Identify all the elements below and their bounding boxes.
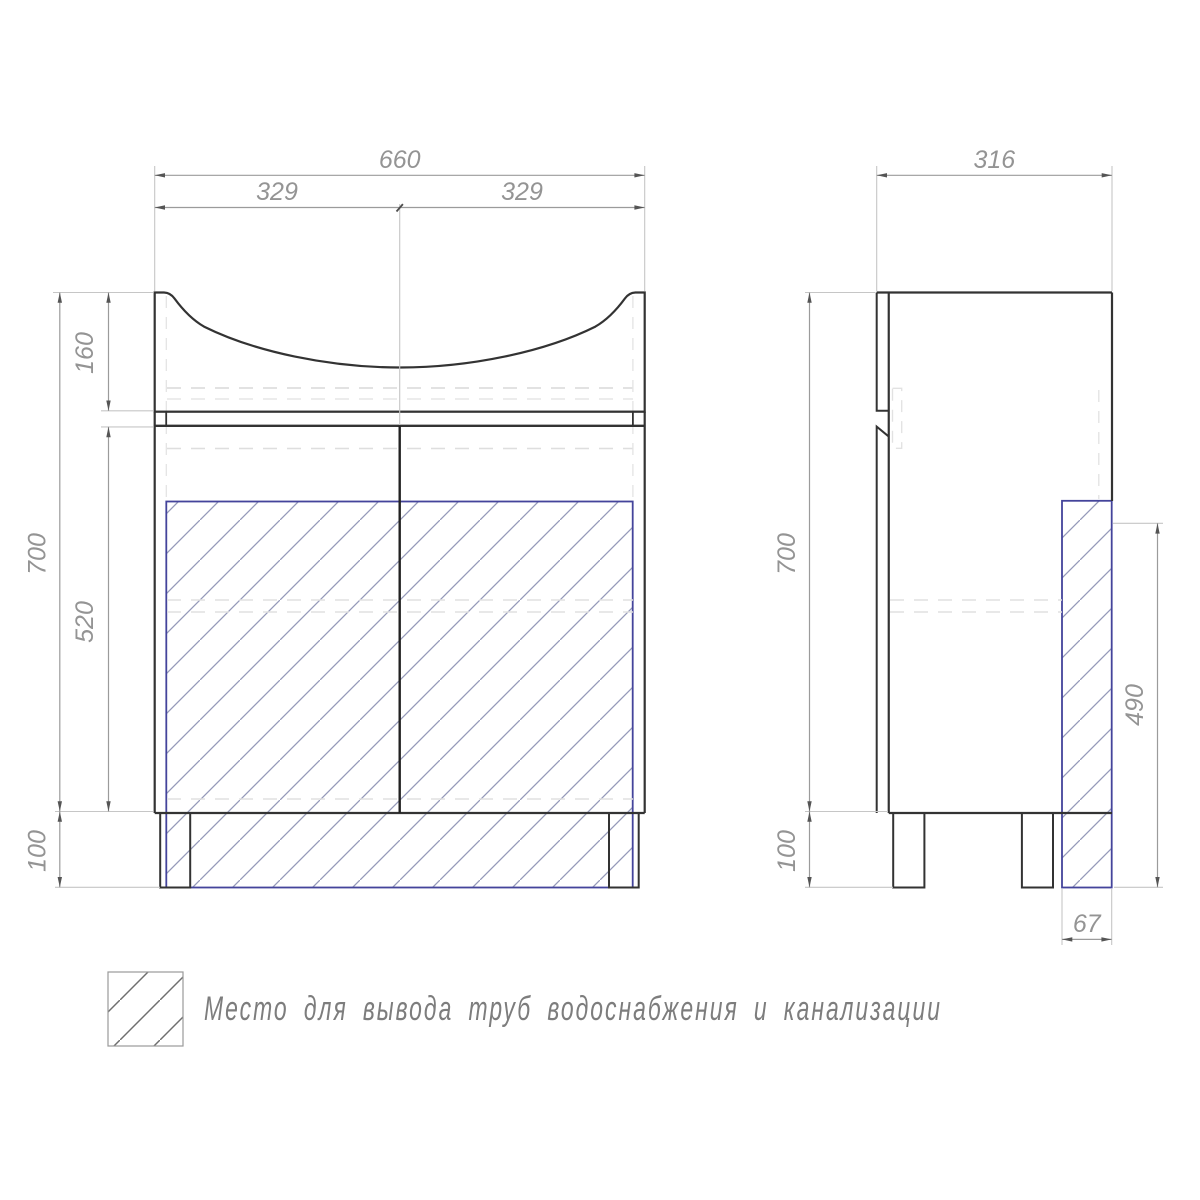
svg-text:329: 329: [256, 178, 298, 206]
svg-text:100: 100: [773, 830, 801, 872]
svg-text:700: 700: [773, 533, 801, 575]
svg-text:Место для вывода труб водоснаб: Место для вывода труб водоснабжения и ка…: [204, 990, 942, 1028]
svg-text:520: 520: [71, 601, 99, 643]
svg-text:660: 660: [379, 146, 421, 174]
svg-text:329: 329: [501, 178, 543, 206]
svg-text:316: 316: [973, 146, 1015, 174]
svg-text:160: 160: [71, 332, 99, 374]
svg-text:100: 100: [24, 830, 52, 872]
svg-text:490: 490: [1121, 684, 1149, 726]
svg-text:67: 67: [1073, 910, 1102, 938]
svg-text:700: 700: [24, 533, 52, 575]
